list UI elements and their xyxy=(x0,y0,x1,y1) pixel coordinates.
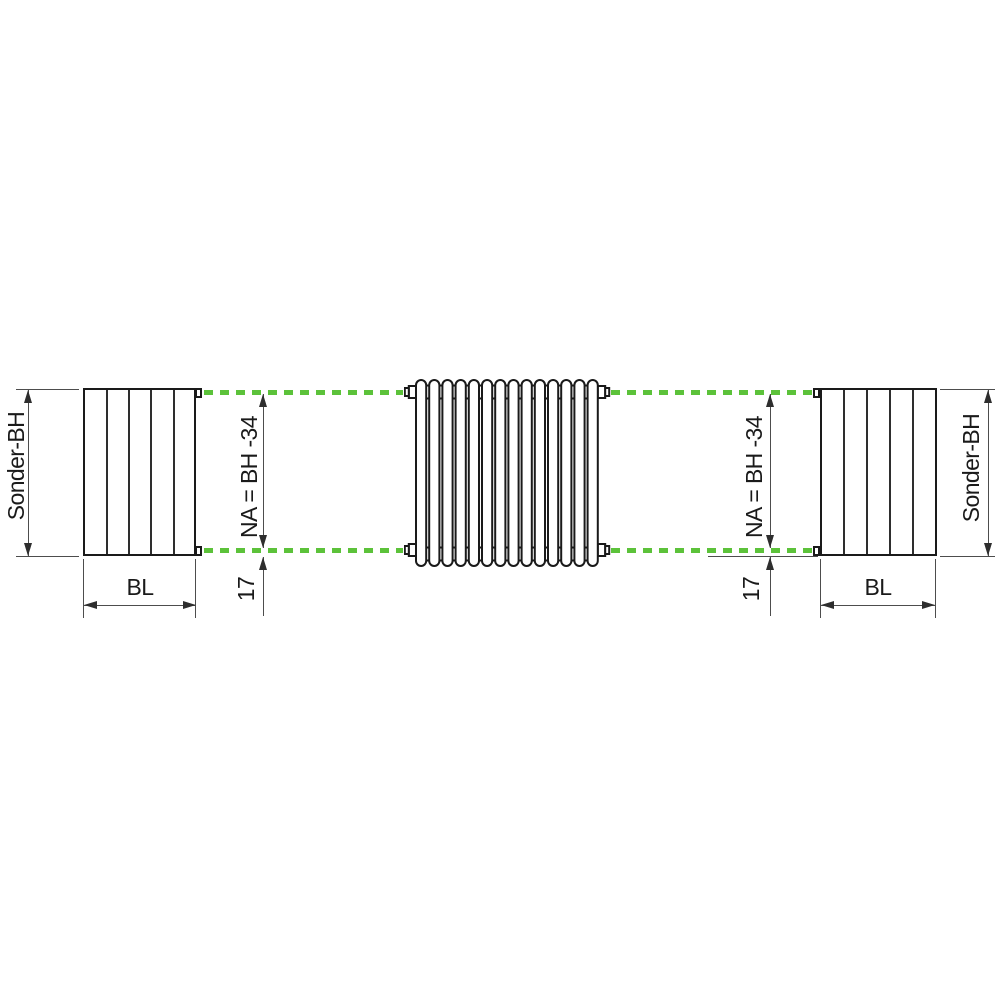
arrow-up-icon xyxy=(766,557,774,570)
arrow-left-icon xyxy=(821,601,834,609)
bl-label-left: BL xyxy=(110,574,170,600)
arrow-right-icon xyxy=(183,601,196,609)
radiator-part xyxy=(605,388,609,396)
left-side-view xyxy=(83,388,196,556)
radiator-part xyxy=(598,544,605,556)
radiator-part xyxy=(574,380,584,566)
left-view-top-nipple xyxy=(195,388,202,398)
radiator-part xyxy=(588,380,598,566)
arrow-down-icon xyxy=(766,535,774,548)
panel-divider xyxy=(912,390,914,554)
panel-divider xyxy=(866,390,868,554)
radiator-part xyxy=(522,380,532,566)
arrow-up-icon xyxy=(259,557,267,570)
diagram-canvas: Sonder-BH BL NA = BH -34 17 NA = BH -34 … xyxy=(0,0,1000,1000)
extension-line xyxy=(940,556,995,557)
arrow-right-icon xyxy=(922,601,935,609)
arrow-up-icon xyxy=(766,394,774,407)
radiator-part xyxy=(561,380,571,566)
sonder-bh-label-right: Sonder-BH xyxy=(958,393,984,543)
radiator-part xyxy=(405,388,409,396)
bl-dimension-line-left xyxy=(84,605,196,606)
radiator-part xyxy=(405,546,409,554)
bl-dimension-line-right xyxy=(821,605,935,606)
offset-17-label-right: 17 xyxy=(738,564,764,614)
extension-line xyxy=(195,559,196,618)
na-dimension-line-right xyxy=(770,394,771,548)
offset-17-label-left: 17 xyxy=(233,564,259,614)
radiator-part xyxy=(429,380,439,566)
radiator-part xyxy=(548,380,558,566)
bottom-reference-line-right xyxy=(708,556,818,557)
arrow-up-icon xyxy=(984,390,992,403)
radiator-part xyxy=(416,380,426,566)
extension-line xyxy=(83,559,84,618)
arrow-left-icon xyxy=(84,601,97,609)
radiator-part xyxy=(598,386,605,398)
arrow-down-icon xyxy=(24,543,32,556)
sonder-bh-dimension-line-right xyxy=(988,390,989,556)
nipple-axis-bottom-right xyxy=(611,548,812,553)
radiator-part xyxy=(508,380,518,566)
radiator-part xyxy=(482,380,492,566)
radiator-part xyxy=(605,546,609,554)
radiator-part xyxy=(456,380,466,566)
right-view-bottom-nipple xyxy=(813,546,820,556)
na-label-right: NA = BH -34 xyxy=(741,397,767,557)
panel-divider xyxy=(889,390,891,554)
radiator-part xyxy=(535,380,545,566)
radiator-part xyxy=(442,380,452,566)
extension-line xyxy=(820,559,821,618)
radiator-part xyxy=(495,380,505,566)
nipple-axis-bottom-left xyxy=(204,548,403,553)
left-view-bottom-nipple xyxy=(195,546,202,556)
panel-divider xyxy=(106,390,108,554)
panel-divider xyxy=(843,390,845,554)
bl-label-right: BL xyxy=(848,574,908,600)
extension-line xyxy=(16,556,79,557)
right-side-view xyxy=(820,388,937,556)
nipple-axis-top-right xyxy=(611,390,812,395)
right-view-top-nipple xyxy=(813,388,820,398)
radiator-front-view xyxy=(404,375,616,571)
sonder-bh-label-left: Sonder-BH xyxy=(3,391,29,541)
extension-line xyxy=(935,559,936,618)
panel-divider xyxy=(173,390,175,554)
radiator-part xyxy=(469,380,479,566)
na-dimension-line-left xyxy=(263,394,264,548)
nipple-axis-top-left xyxy=(204,390,403,395)
panel-divider xyxy=(150,390,152,554)
panel-divider xyxy=(128,390,130,554)
arrow-down-icon xyxy=(984,543,992,556)
na-label-left: NA = BH -34 xyxy=(236,397,262,557)
